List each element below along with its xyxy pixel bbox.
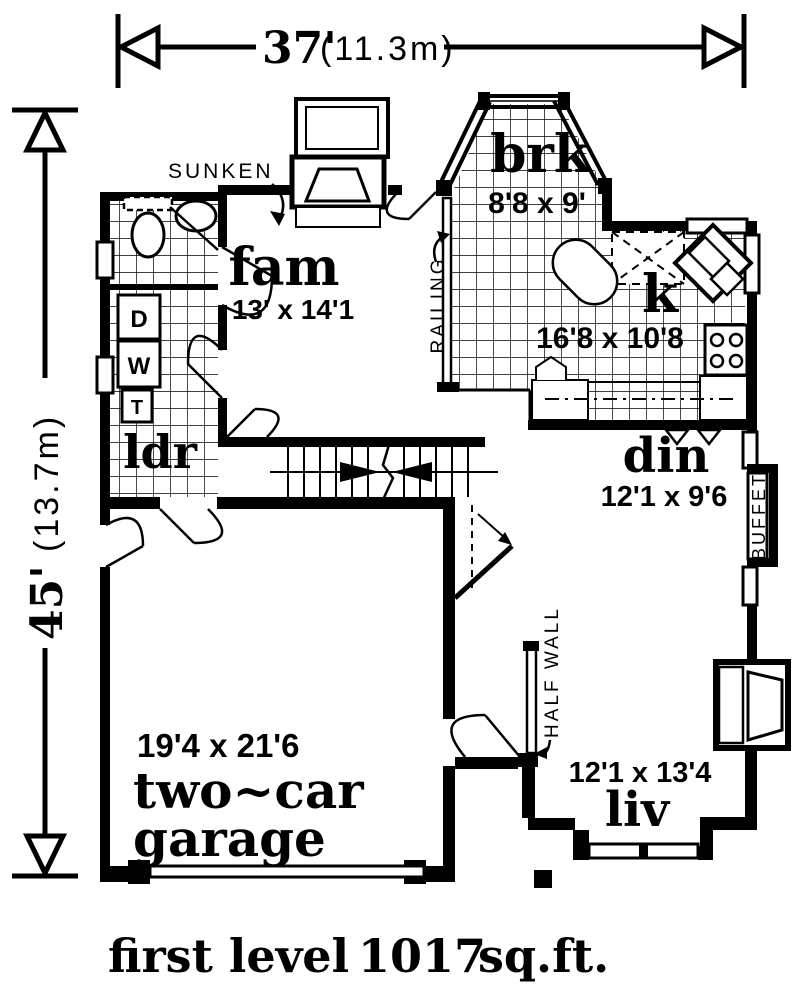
family-hall-door-leaf bbox=[227, 409, 255, 437]
washer-label: W bbox=[128, 353, 151, 380]
family-hall-door-arc bbox=[255, 409, 279, 437]
arrow-left-icon bbox=[121, 28, 158, 66]
kitchen-room-label: k bbox=[642, 264, 679, 325]
garage-side-door-arc bbox=[106, 518, 143, 546]
sink-icon bbox=[176, 201, 216, 231]
left-dimension-feet: 45' bbox=[22, 565, 73, 640]
left-dimension: 45' (13.7m) bbox=[12, 110, 78, 876]
stair-arrow-left-icon bbox=[340, 462, 380, 482]
dining-room: BUFFET din 12'1 x 9'6 bbox=[601, 428, 778, 605]
closet-door-leaf bbox=[478, 514, 505, 538]
floor-plan-page: 37' (11.3m) 45' (13.7m) bbox=[0, 0, 800, 991]
half-wall bbox=[527, 649, 536, 753]
front-door-leaf bbox=[409, 192, 436, 219]
floor-plan-drawing: 37' (11.3m) 45' (13.7m) bbox=[0, 0, 800, 991]
top-dimension-meters: (11.3m) bbox=[320, 30, 456, 68]
dining-room-size: 12'1 x 9'6 bbox=[601, 481, 728, 513]
front-door-arc bbox=[387, 192, 409, 219]
bath-window bbox=[97, 242, 113, 278]
garage-label-line2: garage bbox=[133, 809, 326, 868]
garage-side-door-leaf bbox=[106, 546, 143, 567]
arrow-down-icon bbox=[27, 836, 63, 873]
stairs bbox=[270, 438, 498, 504]
family-room-label: fam bbox=[228, 237, 339, 298]
dining-window-bottom bbox=[743, 567, 757, 605]
living-hearth bbox=[719, 667, 743, 743]
garage-size: 19'4 x 21'6 bbox=[137, 727, 300, 764]
half-wall-label: HALF WALL bbox=[542, 606, 563, 738]
family-room-size: 13' x 14'1 bbox=[232, 294, 354, 325]
sunken-label: SUNKEN bbox=[168, 160, 274, 183]
entry-hall: HALF WALL bbox=[451, 606, 563, 769]
dryer-label: D bbox=[130, 306, 147, 333]
railing-label: RAILING bbox=[428, 256, 449, 353]
kitchen-room-size: 16'8 x 10'8 bbox=[536, 322, 684, 355]
breakfast-room-label: brk bbox=[490, 124, 591, 185]
dining-window-top bbox=[743, 432, 757, 468]
laundry-room-label: ldr bbox=[123, 425, 198, 479]
garage-laundry-door-leaf bbox=[160, 509, 194, 543]
footer: first level 1017 sq.ft. bbox=[108, 929, 609, 983]
garage: 19'4 x 21'6 two~car garage bbox=[100, 497, 512, 884]
living-room-label: liv bbox=[605, 782, 671, 838]
laundry-tub-label: T bbox=[131, 397, 143, 419]
hall-door-leaf bbox=[485, 715, 520, 757]
footer-unit: sq.ft. bbox=[478, 929, 609, 983]
family-hearth bbox=[296, 207, 380, 227]
left-dimension-meters: (13.7m) bbox=[28, 414, 66, 552]
garage-laundry-door-arc bbox=[194, 509, 222, 543]
laundry-window bbox=[97, 357, 113, 393]
top-dimension: 37' (11.3m) bbox=[118, 14, 744, 88]
stove-icon bbox=[705, 325, 747, 375]
closet-angled-wall bbox=[455, 546, 512, 598]
stair-arrow-right-icon bbox=[392, 462, 432, 482]
footer-area: 1017 bbox=[358, 929, 486, 983]
footer-level: first level bbox=[108, 929, 349, 983]
buffet-label: BUFFET bbox=[749, 472, 769, 560]
toilet-icon bbox=[132, 213, 164, 257]
toilet-tank-icon bbox=[124, 197, 172, 210]
breakfast-room-size: 8'8 x 9' bbox=[488, 187, 586, 220]
arrow-right-icon bbox=[704, 28, 741, 66]
arrow-up-icon bbox=[27, 113, 63, 150]
hall-door-arc bbox=[451, 715, 485, 757]
dining-room-label: din bbox=[623, 428, 710, 484]
chimney-inner bbox=[306, 107, 378, 149]
porch-post bbox=[534, 870, 552, 888]
